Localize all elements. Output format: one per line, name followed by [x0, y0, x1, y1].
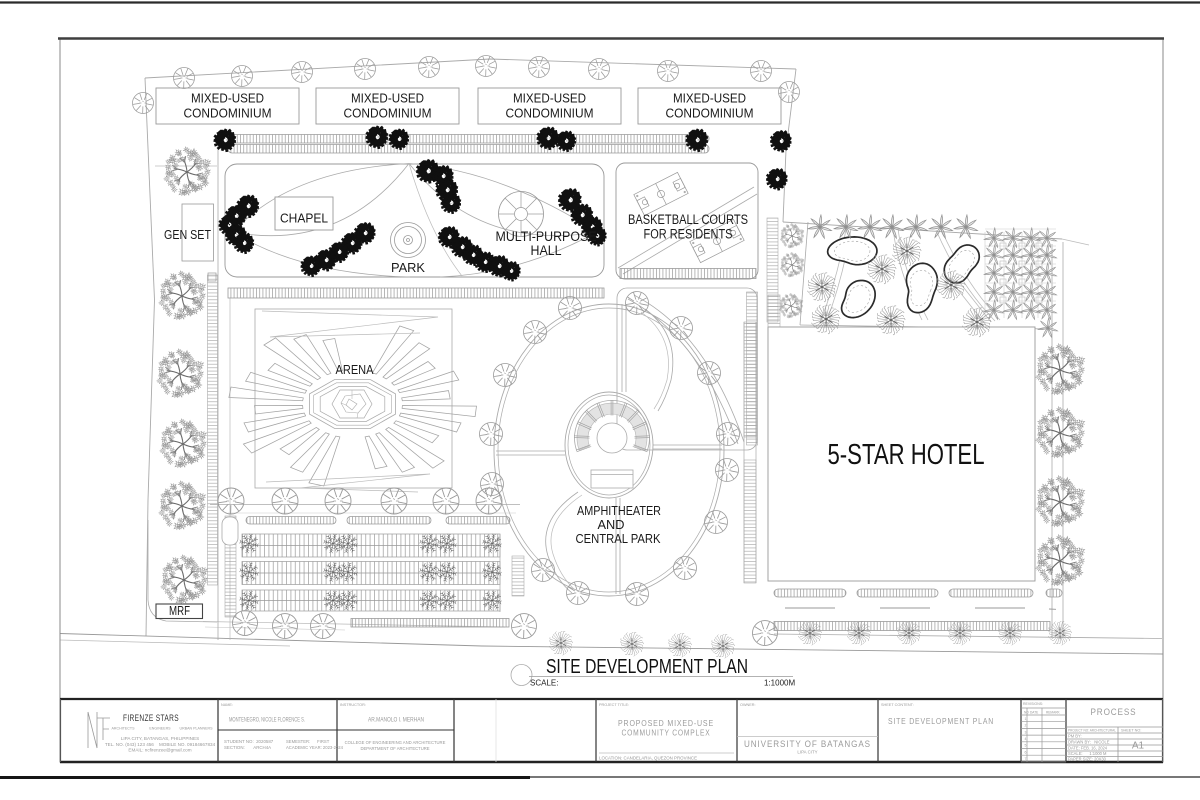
svg-text:MIXED-USED: MIXED-USED: [513, 91, 586, 106]
svg-text:AND: AND: [598, 517, 625, 532]
svg-text:SITE DEVELOPMENT PLAN: SITE DEVELOPMENT PLAN: [888, 716, 994, 726]
svg-text:REMARK: REMARK: [1046, 711, 1061, 715]
svg-text:OWNER:: OWNER:: [740, 703, 756, 707]
svg-text:3: 3: [1025, 730, 1027, 734]
svg-text:SCALE:: SCALE:: [530, 679, 558, 688]
svg-text:ACADEMIC YEAR: 2023-2024: ACADEMIC YEAR: 2023-2024: [286, 745, 344, 750]
svg-text:5: 5: [1025, 744, 1027, 748]
svg-text:COLLEGE OF ENGINEERING AND ARC: COLLEGE OF ENGINEERING AND ARCHITECTURE: [345, 740, 446, 745]
svg-text:NAME:: NAME:: [221, 703, 233, 707]
svg-text:PROCESS: PROCESS: [1091, 707, 1137, 718]
svg-text:A1: A1: [1132, 741, 1145, 752]
svg-text:LIPA CITY: LIPA CITY: [797, 750, 817, 755]
svg-text:CENTRAL PARK: CENTRAL PARK: [576, 531, 661, 546]
svg-text:1: 1: [1025, 717, 1027, 721]
svg-text:MIXED-USED: MIXED-USED: [351, 91, 424, 106]
svg-text:GEN SET: GEN SET: [164, 227, 211, 242]
svg-text:LOCATION: CANDELARIA, QUEZON P: LOCATION: CANDELARIA, QUEZON PROVINCE: [599, 756, 697, 761]
svg-text:CONDOMINIUM: CONDOMINIUM: [506, 106, 594, 121]
svg-text:SCALE: 1:1000 M: SCALE: 1:1000 M: [1068, 751, 1107, 756]
svg-text:INSTRUCTOR:: INSTRUCTOR:: [340, 703, 366, 707]
svg-text:PROJECT NO: ARCHITECTURAL: PROJECT NO: ARCHITECTURAL: [1068, 729, 1116, 733]
svg-text:DATE: FEB. 16, 2024: DATE: FEB. 16, 2024: [1068, 746, 1108, 751]
svg-text:ARCHITECTS: ARCHITECTS: [112, 727, 136, 731]
svg-text:PARK: PARK: [391, 261, 426, 275]
svg-text:SITE DEVELOPMENT PLAN: SITE DEVELOPMENT PLAN: [546, 655, 748, 678]
svg-text:LIPA CITY, BATANGAS, PHILIPPIN: LIPA CITY, BATANGAS, PHILIPPINES: [121, 736, 199, 741]
svg-text:FOR RESIDENTS: FOR RESIDENTS: [644, 227, 733, 242]
svg-text:BASKETBALL COURTS: BASKETBALL COURTS: [628, 212, 748, 227]
svg-text:5-STAR HOTEL: 5-STAR HOTEL: [828, 439, 985, 471]
svg-text:TEL. NO. (043) 123 456 MOBI: TEL. NO. (043) 123 456 MOBILE NO. 091846…: [105, 742, 216, 747]
svg-text:MONTENEGRO, NICOLE FLORENCE S.: MONTENEGRO, NICOLE FLORENCE S.: [229, 717, 305, 724]
svg-text:MIXED-USED: MIXED-USED: [673, 91, 746, 106]
svg-text:1:1000M: 1:1000M: [764, 679, 795, 688]
svg-text:REVISIONS:: REVISIONS:: [1023, 702, 1043, 706]
svg-text:UNIVERSITY OF BATANGAS: UNIVERSITY OF BATANGAS: [744, 739, 871, 749]
svg-text:CONDOMINIUM: CONDOMINIUM: [666, 106, 754, 121]
svg-text:CONDOMINIUM: CONDOMINIUM: [184, 106, 272, 121]
svg-text:AR.MANOLO I. MERHAN: AR.MANOLO I. MERHAN: [368, 717, 424, 724]
svg-text:DRAWN BY: NICOLE: DRAWN BY: NICOLE: [1068, 740, 1110, 745]
svg-text:SHEET CONTENT:: SHEET CONTENT:: [881, 703, 914, 707]
svg-text:7: 7: [1025, 757, 1027, 761]
svg-text:MRF: MRF: [169, 604, 190, 618]
svg-text:AMPHITHEATER: AMPHITHEATER: [577, 503, 661, 518]
svg-text:SHEET NO:: SHEET NO:: [1121, 729, 1141, 733]
svg-text:ARENA: ARENA: [336, 362, 374, 377]
svg-text:SEMESTER: FIRST: SEMESTER: FIRST: [286, 739, 330, 744]
svg-text:EMAIL: ncfirenzee@gmail.com: EMAIL: ncfirenzee@gmail.com: [128, 748, 191, 753]
svg-text:DEPARTMENT OF ARCHITECTURE: DEPARTMENT OF ARCHITECTURE: [360, 746, 429, 751]
svg-text:SECTION: ARCH4A: SECTION: ARCH4A: [224, 745, 271, 750]
svg-text:CONDOMINIUM: CONDOMINIUM: [344, 106, 432, 121]
svg-text:PM BY:: PM BY:: [1068, 734, 1082, 739]
svg-text:FIRENZE STARS: FIRENZE STARS: [123, 713, 179, 724]
svg-text:4: 4: [1025, 737, 1027, 741]
svg-text:MIXED-USED: MIXED-USED: [191, 91, 264, 106]
svg-text:2: 2: [1025, 724, 1027, 728]
svg-text:ENGINEERS: ENGINEERS: [149, 727, 171, 731]
svg-text:STUDENT NO: 2020587: STUDENT NO: 2020587: [224, 739, 274, 744]
svg-text:HALL: HALL: [531, 243, 562, 258]
svg-text:COMMUNITY COMPLEX: COMMUNITY COMPLEX: [622, 728, 711, 738]
svg-text:MULTI-PURPOSE: MULTI-PURPOSE: [496, 229, 597, 244]
svg-text:CHAPEL: CHAPEL: [280, 212, 328, 226]
svg-text:PROPOSED MIXED-USE: PROPOSED MIXED-USE: [618, 718, 714, 728]
svg-text:URBAN PLANNERS: URBAN PLANNERS: [180, 727, 214, 731]
svg-text:6: 6: [1025, 750, 1027, 754]
svg-text:PAPER SIZE: 20X30: PAPER SIZE: 20X30: [1068, 757, 1107, 762]
svg-text:PROJECT TITLE:: PROJECT TITLE:: [599, 703, 629, 707]
svg-text:DATE: DATE: [1030, 711, 1038, 715]
